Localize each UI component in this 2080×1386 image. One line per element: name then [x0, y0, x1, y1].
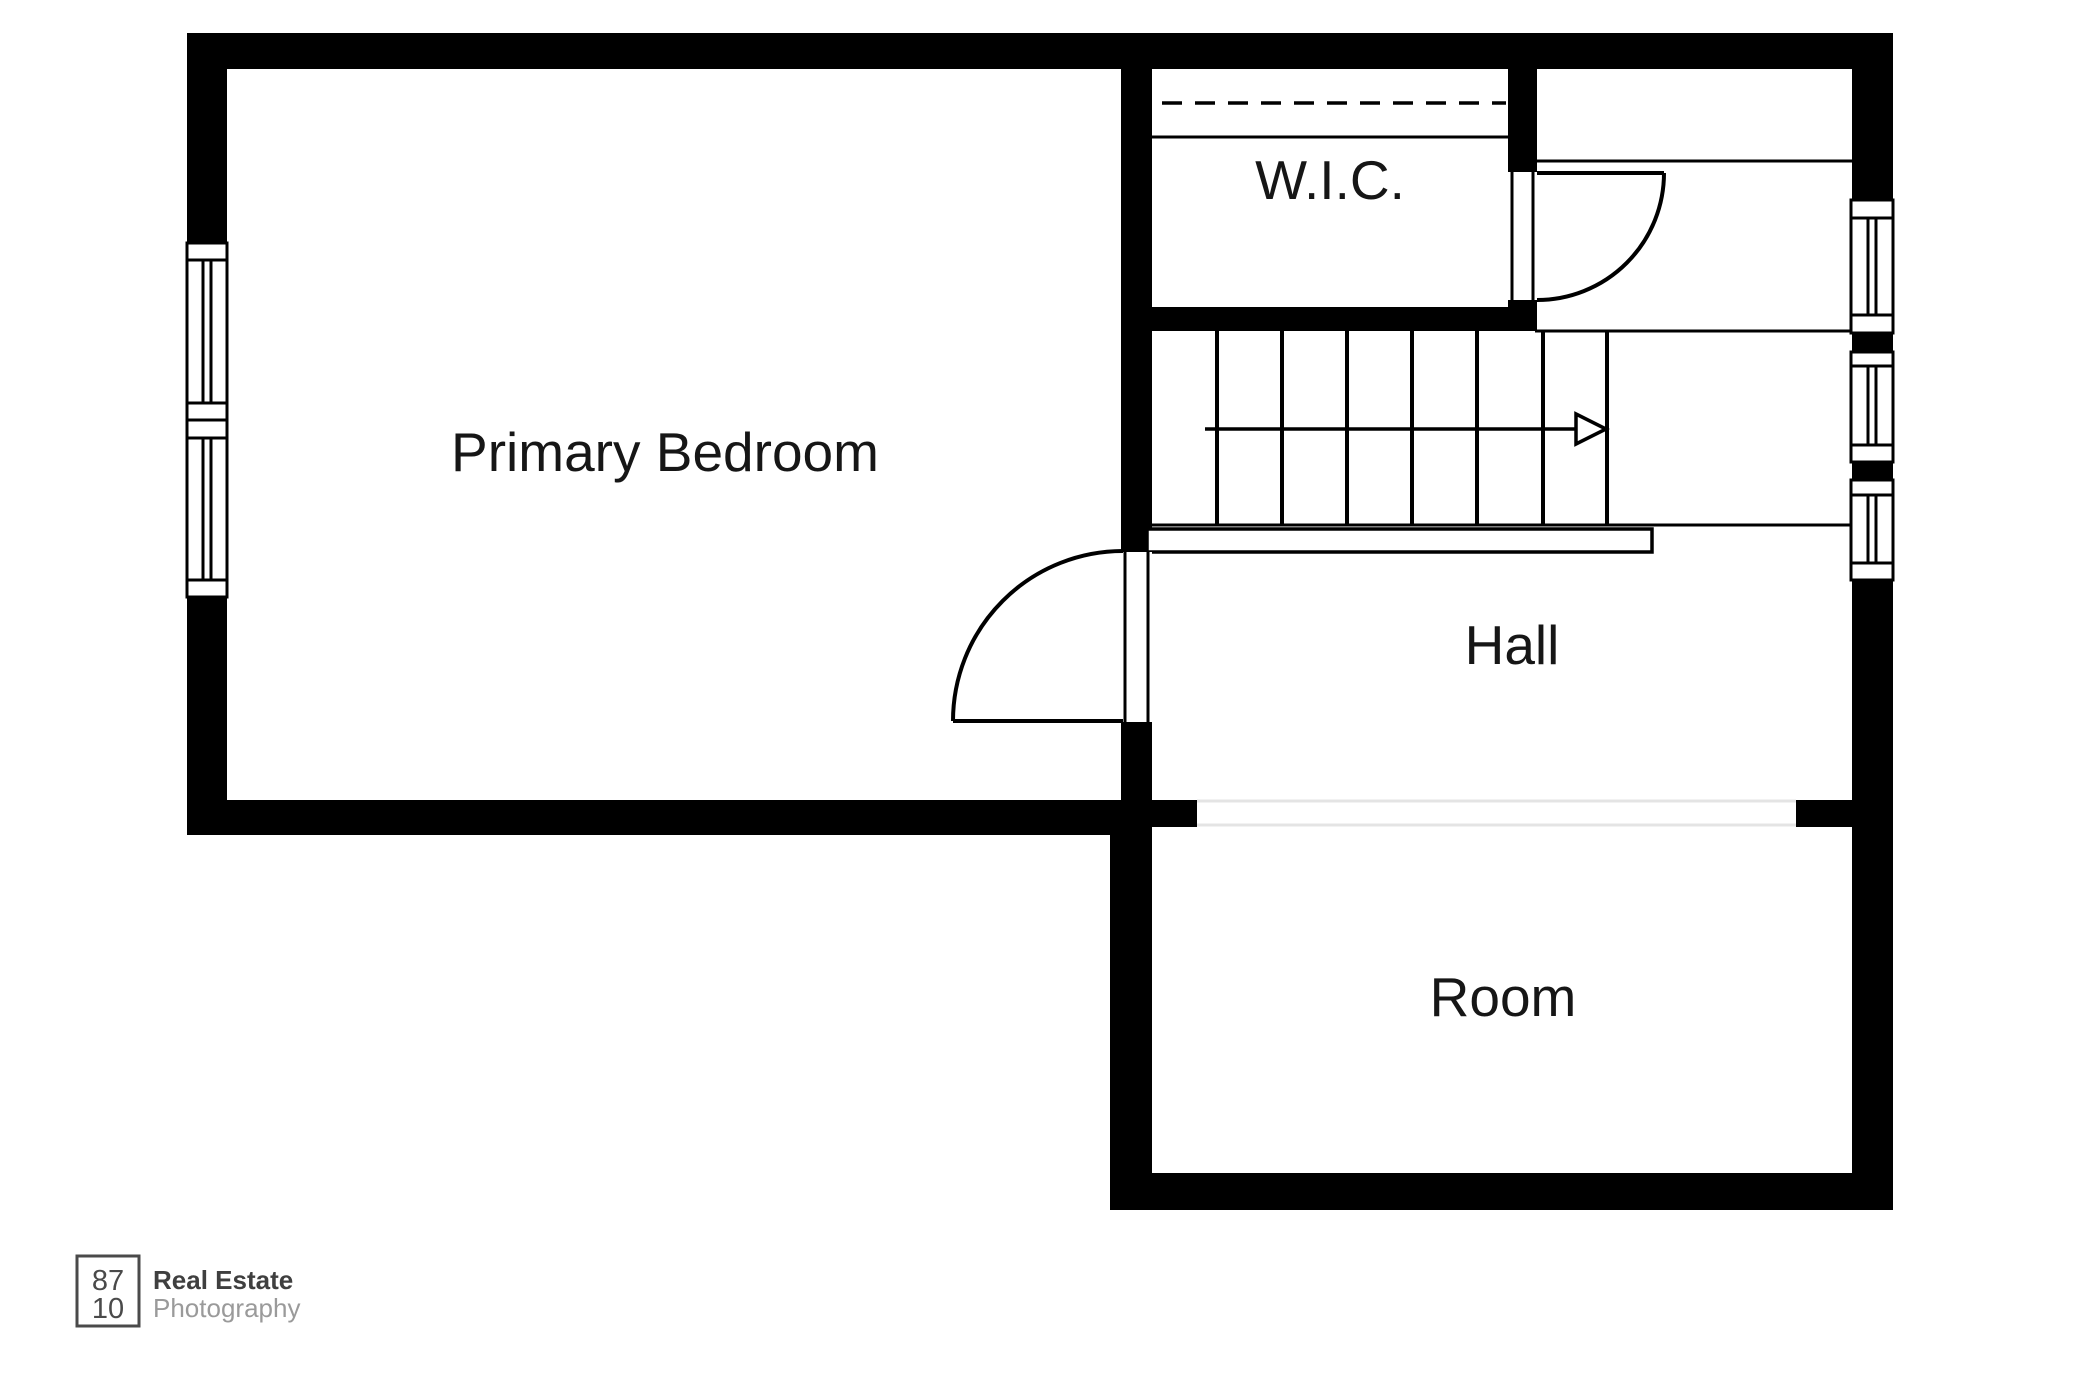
- window-frame: [1851, 200, 1893, 333]
- label-hall: Hall: [1465, 614, 1560, 676]
- wic-closet-fittings: [1152, 103, 1508, 137]
- wall-bedroom-bottom: [187, 800, 1152, 835]
- logo-number-bottom: 10: [92, 1293, 124, 1325]
- left-wall-double-window: [187, 243, 227, 597]
- label-wic: W.I.C.: [1255, 149, 1405, 211]
- wall-opening-stub-right: [1796, 800, 1852, 827]
- closet-room-door: [1508, 172, 1664, 300]
- wall-room-left: [1110, 800, 1152, 1210]
- right-wall-window-1: [1851, 200, 1893, 333]
- wall-room-bottom: [1110, 1173, 1893, 1210]
- stair-railing: [1147, 529, 1652, 552]
- stair-direction-arrow: [1205, 414, 1606, 444]
- door-swing-arc: [1537, 173, 1664, 300]
- label-primary-bedroom: Primary Bedroom: [451, 421, 879, 483]
- door-swing-arc: [953, 551, 1123, 721]
- right-wall-window-2: [1851, 352, 1893, 462]
- label-room: Room: [1430, 966, 1577, 1028]
- floor-plan-drawing: Primary Bedroom W.I.C. Hall Room 87 10 R…: [0, 0, 2080, 1386]
- primary-bedroom-door: [953, 551, 1152, 722]
- floor-plan-page: Primary Bedroom W.I.C. Hall Room 87 10 R…: [0, 0, 2080, 1386]
- logo-brand-line2: Photography: [153, 1293, 300, 1323]
- hall-room-opening: [1197, 801, 1796, 825]
- staircase: [1147, 331, 1852, 552]
- right-wall-window-3: [1851, 480, 1893, 580]
- wall-opening-stub-left: [1152, 800, 1197, 827]
- wall-top-exterior: [187, 33, 1893, 69]
- wall-wic-bottom: [1121, 307, 1535, 331]
- logo: 87 10 Real Estate Photography: [77, 1256, 300, 1326]
- walls: [187, 33, 1893, 1210]
- arrow-head: [1576, 414, 1606, 444]
- logo-brand-line1: Real Estate: [153, 1265, 293, 1295]
